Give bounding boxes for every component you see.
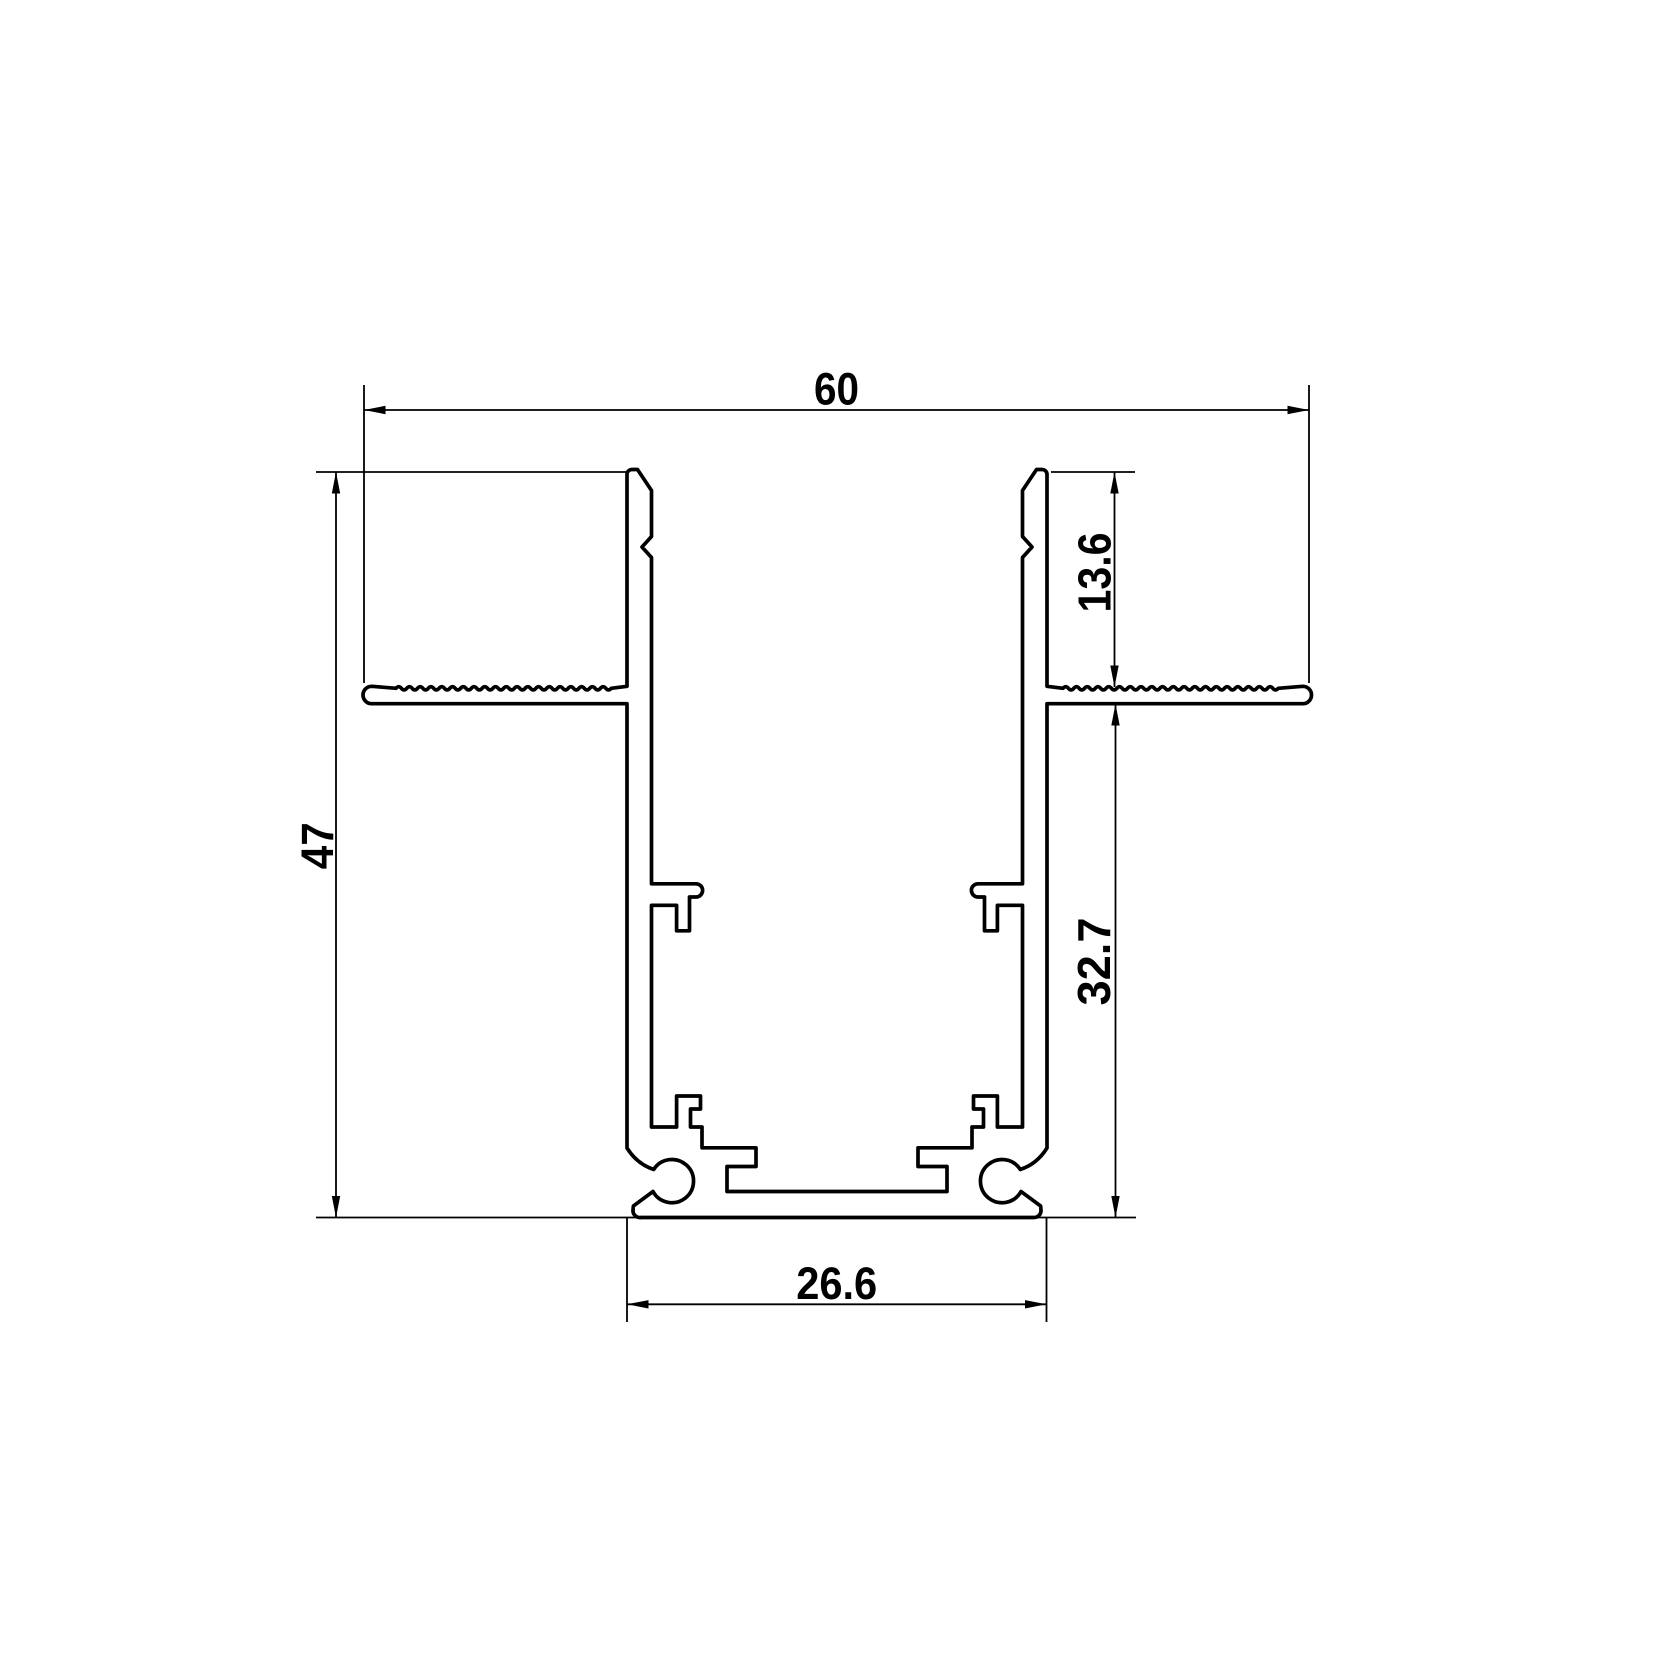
- svg-text:60: 60: [814, 364, 859, 415]
- svg-text:26.6: 26.6: [796, 1258, 877, 1309]
- svg-text:13.6: 13.6: [1069, 533, 1121, 613]
- svg-text:47: 47: [292, 822, 343, 869]
- svg-text:32.7: 32.7: [1068, 918, 1120, 1006]
